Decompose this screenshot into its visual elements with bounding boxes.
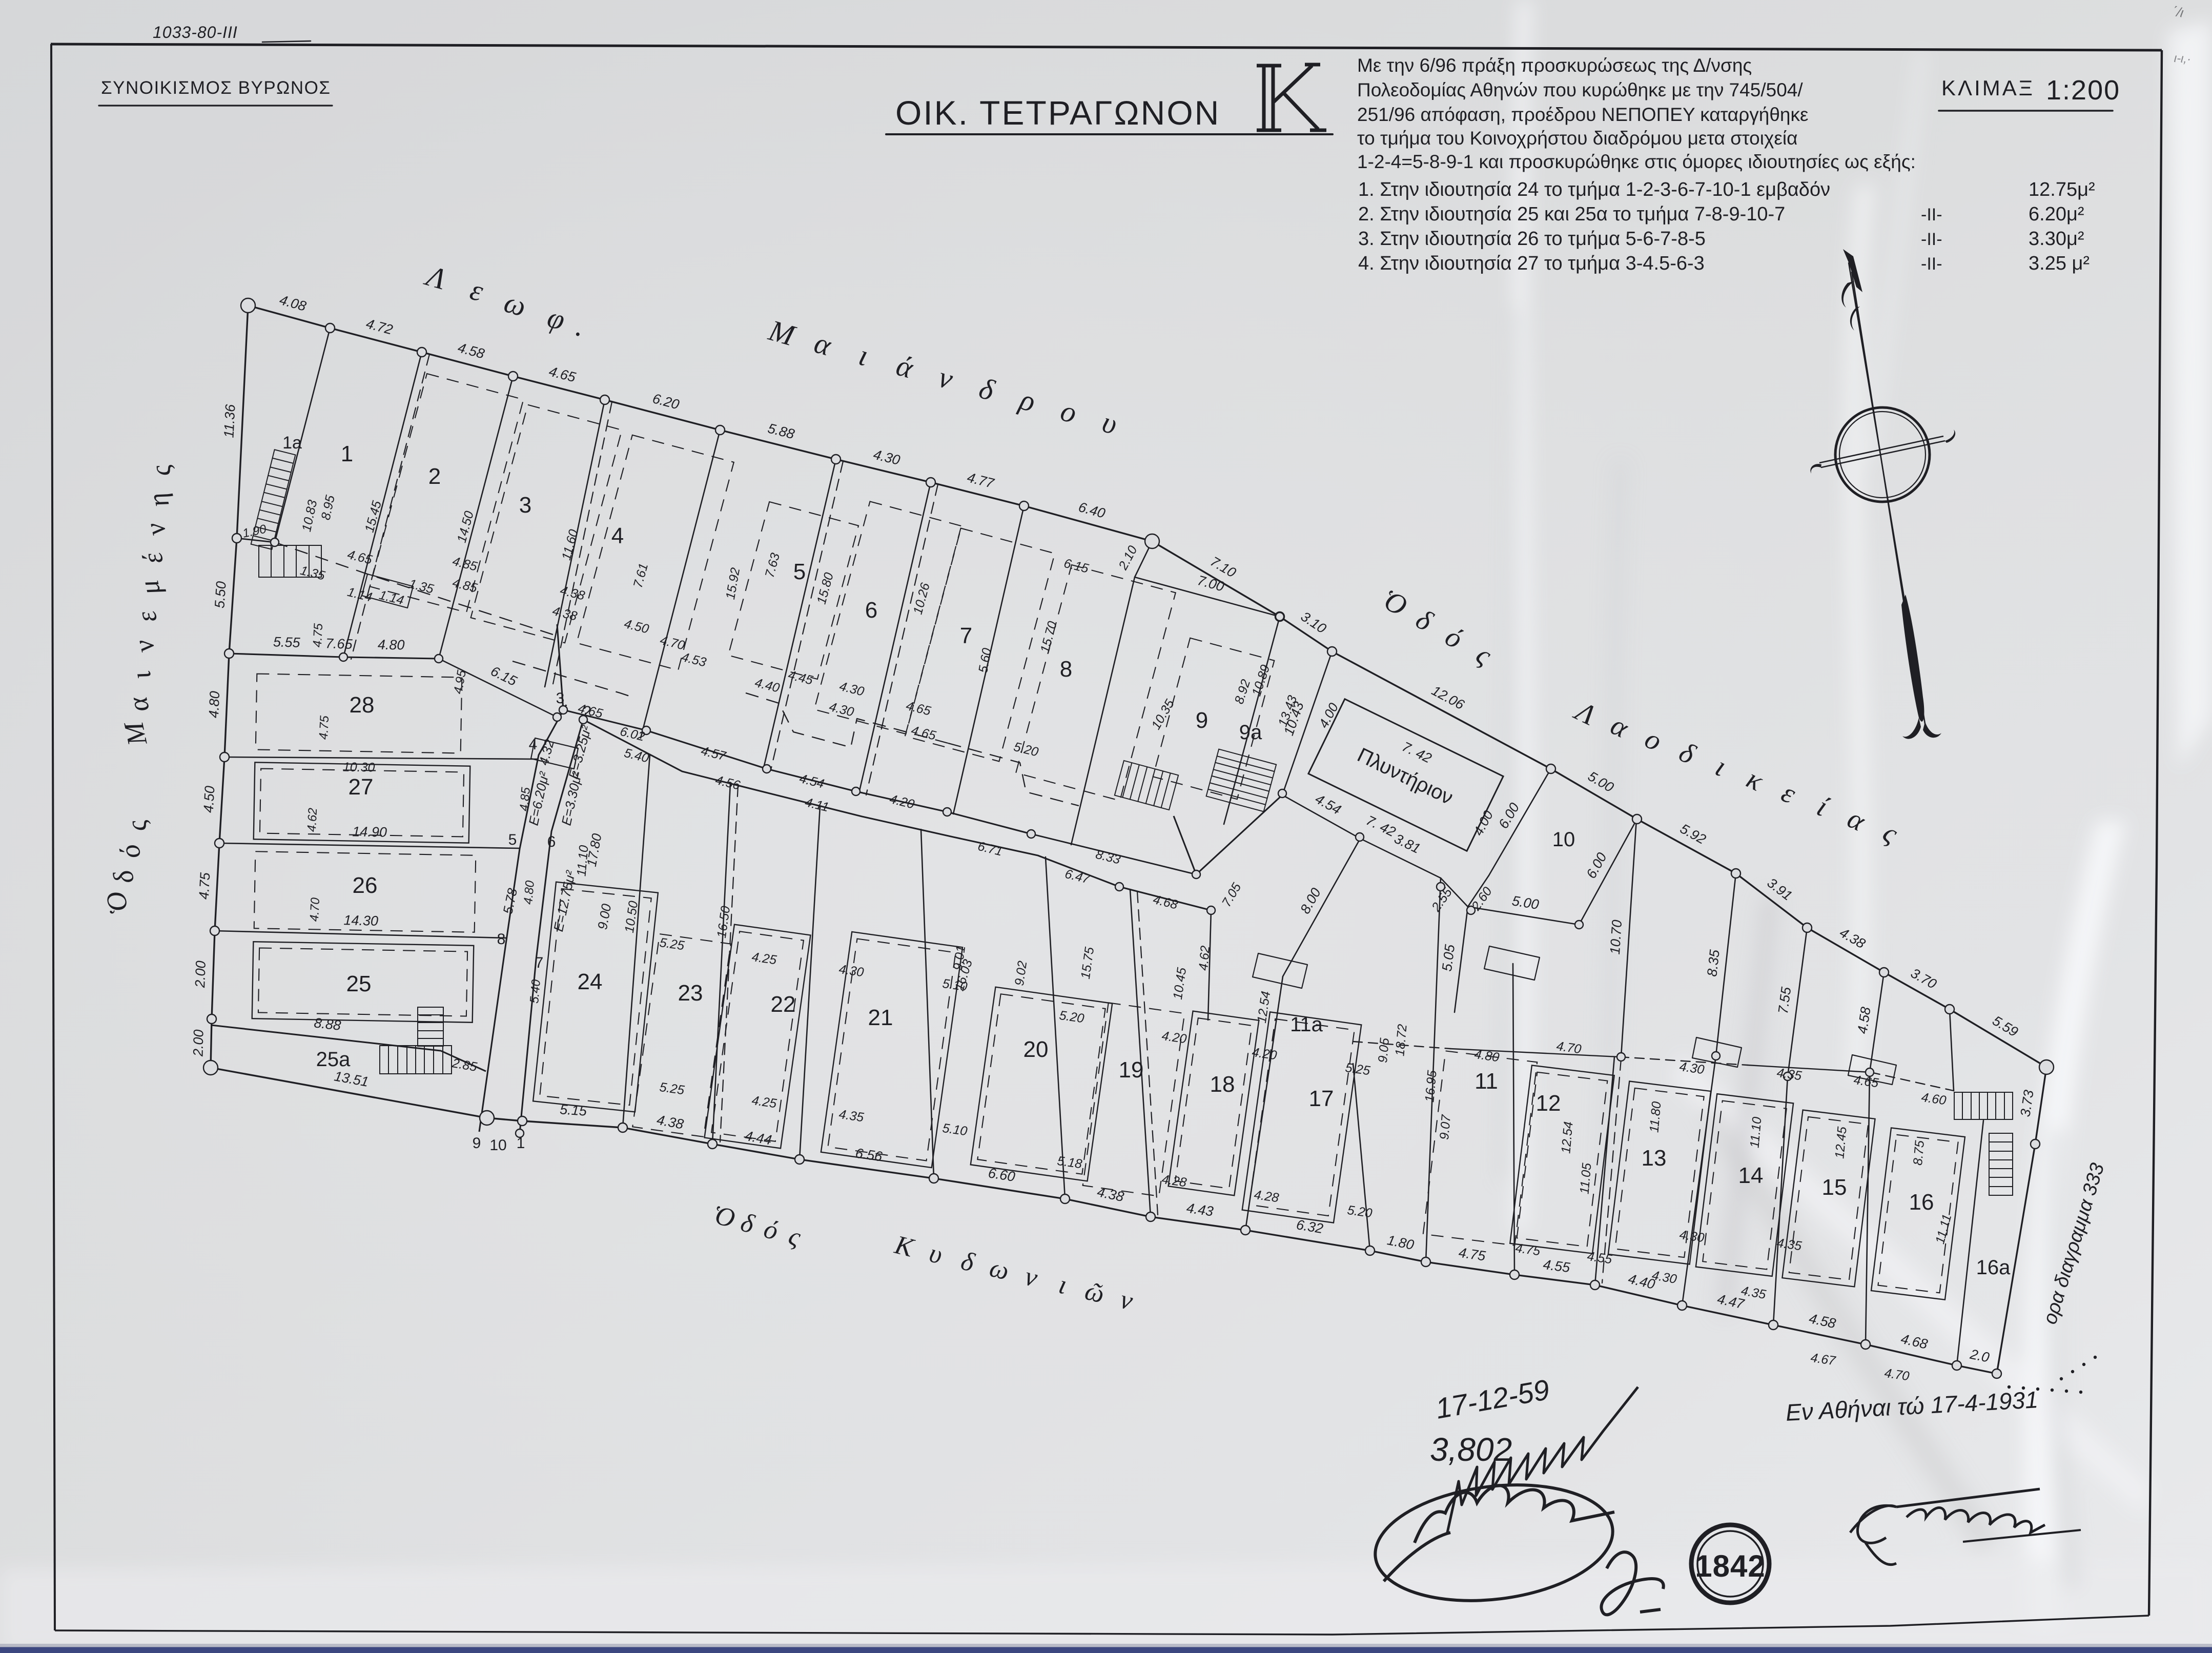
svg-text:9: 9 (1196, 708, 1208, 733)
svg-text:27: 27 (349, 774, 374, 800)
svg-text:10: 10 (1552, 828, 1575, 851)
svg-text:το τμήμα του Κοινοχρήστου διαδ: το τμήμα του Κοινοχρήστου διαδρόμου μετα… (1357, 128, 1797, 149)
svg-text:14: 14 (1738, 1163, 1764, 1188)
svg-text:3.25 μ²: 3.25 μ² (2029, 253, 2090, 274)
svg-text:1:200: 1:200 (2046, 75, 2120, 106)
svg-text:9a: 9a (1239, 721, 1262, 744)
svg-text:4.85: 4.85 (517, 786, 533, 812)
svg-text:4.70: 4.70 (308, 897, 322, 922)
svg-text:Με την 6/96 πράξη προσκυρώσ: Με την 6/96 πράξη προσκυρώσεως της Δ/νση… (1357, 55, 1752, 76)
svg-text:5: 5 (508, 831, 517, 848)
svg-text:16: 16 (1909, 1190, 1934, 1215)
svg-text:10: 10 (489, 1137, 506, 1154)
svg-text:9.07: 9.07 (1437, 1114, 1453, 1140)
svg-text:20: 20 (1023, 1037, 1049, 1062)
svg-text:1. Στην ιδιουτησία 24 το: 1. Στην ιδιουτησία 24 το τμήμα 1-2-3-6-7… (1358, 179, 1830, 200)
svg-text:2.00: 2.00 (192, 961, 209, 989)
svg-text:22: 22 (771, 992, 796, 1017)
svg-text:3: 3 (556, 690, 565, 707)
svg-text:-ΙΙ-: -ΙΙ- (1921, 205, 1942, 225)
svg-text:ΣΥΝΟΙΚΙΣΜΟΣ ΒΥΡΩΝΟΣ: ΣΥΝΟΙΚΙΣΜΟΣ ΒΥΡΩΝΟΣ (101, 78, 331, 98)
svg-text:14.30: 14.30 (343, 912, 378, 929)
svg-text:28: 28 (350, 692, 375, 718)
svg-text:-ΙΙ-: -ΙΙ- (1921, 254, 1942, 274)
svg-text:25: 25 (346, 971, 372, 996)
svg-text:3.30μ²: 3.30μ² (2029, 228, 2084, 250)
svg-text:5.50: 5.50 (212, 581, 229, 608)
svg-text:3,802: 3,802 (1430, 1431, 1512, 1468)
svg-text:4.50: 4.50 (200, 785, 217, 813)
svg-text:Πολεοδομίας Αθηνών που κυρώ: Πολεοδομίας Αθηνών που κυρώθηκε με την 7… (1357, 79, 1803, 100)
svg-text:12.54: 12.54 (1559, 1121, 1575, 1154)
svg-text:26: 26 (353, 873, 378, 898)
svg-text:8: 8 (1060, 657, 1072, 682)
svg-text:8.75: 8.75 (1911, 1140, 1927, 1166)
svg-text:4.80: 4.80 (206, 691, 222, 719)
svg-text:5.40: 5.40 (527, 978, 543, 1004)
svg-text:19: 19 (1119, 1057, 1144, 1083)
svg-text:4.62: 4.62 (1196, 945, 1213, 971)
svg-text:8.88: 8.88 (313, 1015, 342, 1033)
svg-text:3. Στην ιδιουτησία 26 το: 3. Στην ιδιουτησία 26 το τμήμα 5-6-7-8-5 (1358, 228, 1706, 250)
svg-text:1a: 1a (282, 433, 302, 453)
svg-text:12: 12 (1536, 1091, 1561, 1116)
svg-text:11.80: 11.80 (1647, 1101, 1664, 1133)
svg-text:9.05: 9.05 (1376, 1037, 1392, 1064)
svg-text:17: 17 (1309, 1086, 1334, 1111)
svg-text:11.36: 11.36 (221, 403, 238, 438)
svg-text:5: 5 (793, 559, 806, 584)
svg-text:4.75: 4.75 (317, 715, 332, 740)
svg-text:7: 7 (535, 954, 544, 971)
svg-text:4.75: 4.75 (196, 872, 213, 900)
svg-text:9: 9 (473, 1135, 481, 1152)
svg-text:15: 15 (1822, 1175, 1847, 1200)
svg-text:11.05: 11.05 (1577, 1162, 1594, 1195)
svg-text:18.72: 18.72 (1392, 1024, 1409, 1057)
svg-text:3: 3 (519, 493, 531, 518)
svg-text:1842: 1842 (1695, 1549, 1765, 1583)
svg-text:4.75: 4.75 (311, 623, 325, 648)
svg-text:21: 21 (868, 1005, 893, 1030)
svg-text:7.65: 7.65 (325, 636, 354, 652)
svg-text:4: 4 (611, 523, 624, 548)
svg-text:13: 13 (1642, 1146, 1667, 1171)
svg-text:6.20μ²: 6.20μ² (2029, 203, 2084, 225)
svg-text:14.90: 14.90 (352, 824, 387, 840)
svg-text:ΟΙΚ. ΤΕΤΡΑΓΩΝΟΝ: ΟΙΚ. ΤΕΤΡΑΓΩΝΟΝ (895, 94, 1220, 132)
svg-text:1-2-4=5-8-9-1 και προσκυρώθηκε: 1-2-4=5-8-9-1 και προσκυρώθηκε στις όμορ… (1357, 151, 1916, 172)
svg-text:11.10: 11.10 (1747, 1116, 1764, 1149)
svg-text:25a: 25a (316, 1048, 351, 1071)
svg-text:10.70: 10.70 (1607, 920, 1625, 955)
svg-text:4: 4 (529, 736, 538, 753)
svg-text:4.80: 4.80 (378, 637, 405, 653)
svg-text:24: 24 (578, 969, 603, 994)
svg-text:7: 7 (960, 623, 972, 648)
svg-text:16.95: 16.95 (1422, 1070, 1439, 1103)
svg-text:-ΙΙ-: -ΙΙ- (1921, 230, 1942, 249)
svg-text:ΚΛΙΜΑΞ: ΚΛΙΜΑΞ (1941, 76, 2035, 100)
svg-text:2. Στην ιδιουτησία 25 και 2: 2. Στην ιδιουτησία 25 και 25α το τμήμα 7… (1358, 203, 1785, 225)
svg-text:251/96 απόφαση, προέδρου ΝΕΠΟΠ: 251/96 απόφαση, προέδρου ΝΕΠΟΠΕΥ καταργή… (1357, 104, 1808, 125)
svg-text:ι-ι,·: ι-ι,· (2174, 51, 2191, 66)
svg-text:11.10: 11.10 (574, 845, 591, 877)
svg-text:1: 1 (341, 441, 353, 466)
svg-text:4. Στην ιδιουτησία 27 το: 4. Στην ιδιουτησία 27 το τμήμα 3-4.5-6-3 (1358, 253, 1705, 274)
svg-text:6: 6 (865, 598, 877, 623)
svg-text:2.00: 2.00 (190, 1029, 206, 1057)
svg-text:18: 18 (1210, 1072, 1235, 1097)
svg-text:6: 6 (547, 833, 556, 850)
svg-text:10.30: 10.30 (343, 760, 375, 774)
svg-text:8: 8 (497, 931, 506, 948)
svg-text:23: 23 (678, 981, 703, 1006)
svg-text:12.75μ²: 12.75μ² (2029, 179, 2095, 200)
svg-text:4.62: 4.62 (305, 808, 320, 832)
svg-text:8.35: 8.35 (1704, 948, 1723, 977)
svg-text:2: 2 (428, 464, 441, 489)
svg-text:16a: 16a (1976, 1256, 2011, 1279)
svg-text:11: 11 (1474, 1069, 1498, 1094)
svg-text:4.80: 4.80 (521, 880, 537, 905)
svg-text:1033-80-ΙΙΙ: 1033-80-ΙΙΙ (153, 23, 238, 42)
svg-text:12.45: 12.45 (1832, 1126, 1849, 1159)
svg-text:5.55: 5.55 (273, 634, 301, 650)
